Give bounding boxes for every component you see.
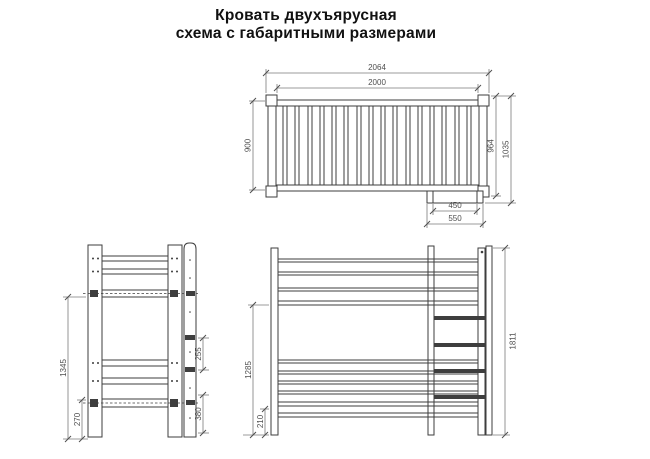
dim-lower-clearance: 210: [256, 406, 269, 438]
front-view-ladder-left-stile: [428, 246, 434, 435]
side-view-rails: [102, 256, 168, 407]
side-view-right-post: [168, 245, 182, 437]
dim-label-outer-length: 2064: [368, 63, 386, 72]
dim-label-inner-length: 2000: [368, 78, 386, 87]
dim-inner-length: 2000: [274, 78, 481, 93]
dim-inner-width: 900: [244, 98, 266, 193]
drawing-page: Кровать двухъярусная схема с габаритными…: [0, 0, 650, 459]
front-view-left-post: [271, 248, 278, 435]
front-view-rails: [278, 259, 478, 417]
dim-label-lower-clearance: 210: [256, 414, 265, 428]
side-view-left-post: [88, 245, 102, 437]
dim-label-ladder-inner: 450: [448, 201, 462, 210]
dim-label-lower-level-height: 270: [73, 412, 82, 426]
top-view-left-endboard: [268, 98, 276, 193]
dim-label-step-spacing: 255: [194, 347, 203, 361]
schematic-svg: 2064 2000 900: [0, 0, 650, 459]
top-view-back-rail: [277, 100, 478, 106]
top-view-slats: [283, 106, 471, 185]
dim-label-inner-width: 900: [244, 138, 253, 152]
front-view-ladder-right-stile: [486, 246, 492, 435]
dim-label-total-width: 1035: [502, 140, 511, 158]
dim-total-height: 1811: [493, 245, 518, 438]
dim-label-upper-clearance: 1285: [244, 361, 253, 379]
dim-label-ladder-outer: 550: [448, 214, 462, 223]
dim-label-upper-level-height: 1345: [59, 359, 68, 377]
front-view: 1285 210 1811: [243, 245, 518, 438]
front-view-right-post: [478, 248, 485, 435]
dim-lower-level-height: 270: [73, 397, 86, 442]
dim-label-lower-step-height: 380: [194, 407, 203, 421]
dim-label-total-height: 1811: [509, 332, 518, 350]
dim-label-outer-width: 964: [487, 139, 496, 153]
front-view-screw: [481, 251, 484, 254]
top-view-front-rail: [277, 185, 478, 191]
top-view: 2064 2000 900: [244, 63, 517, 228]
side-view: 1345 270 255: [59, 243, 209, 442]
